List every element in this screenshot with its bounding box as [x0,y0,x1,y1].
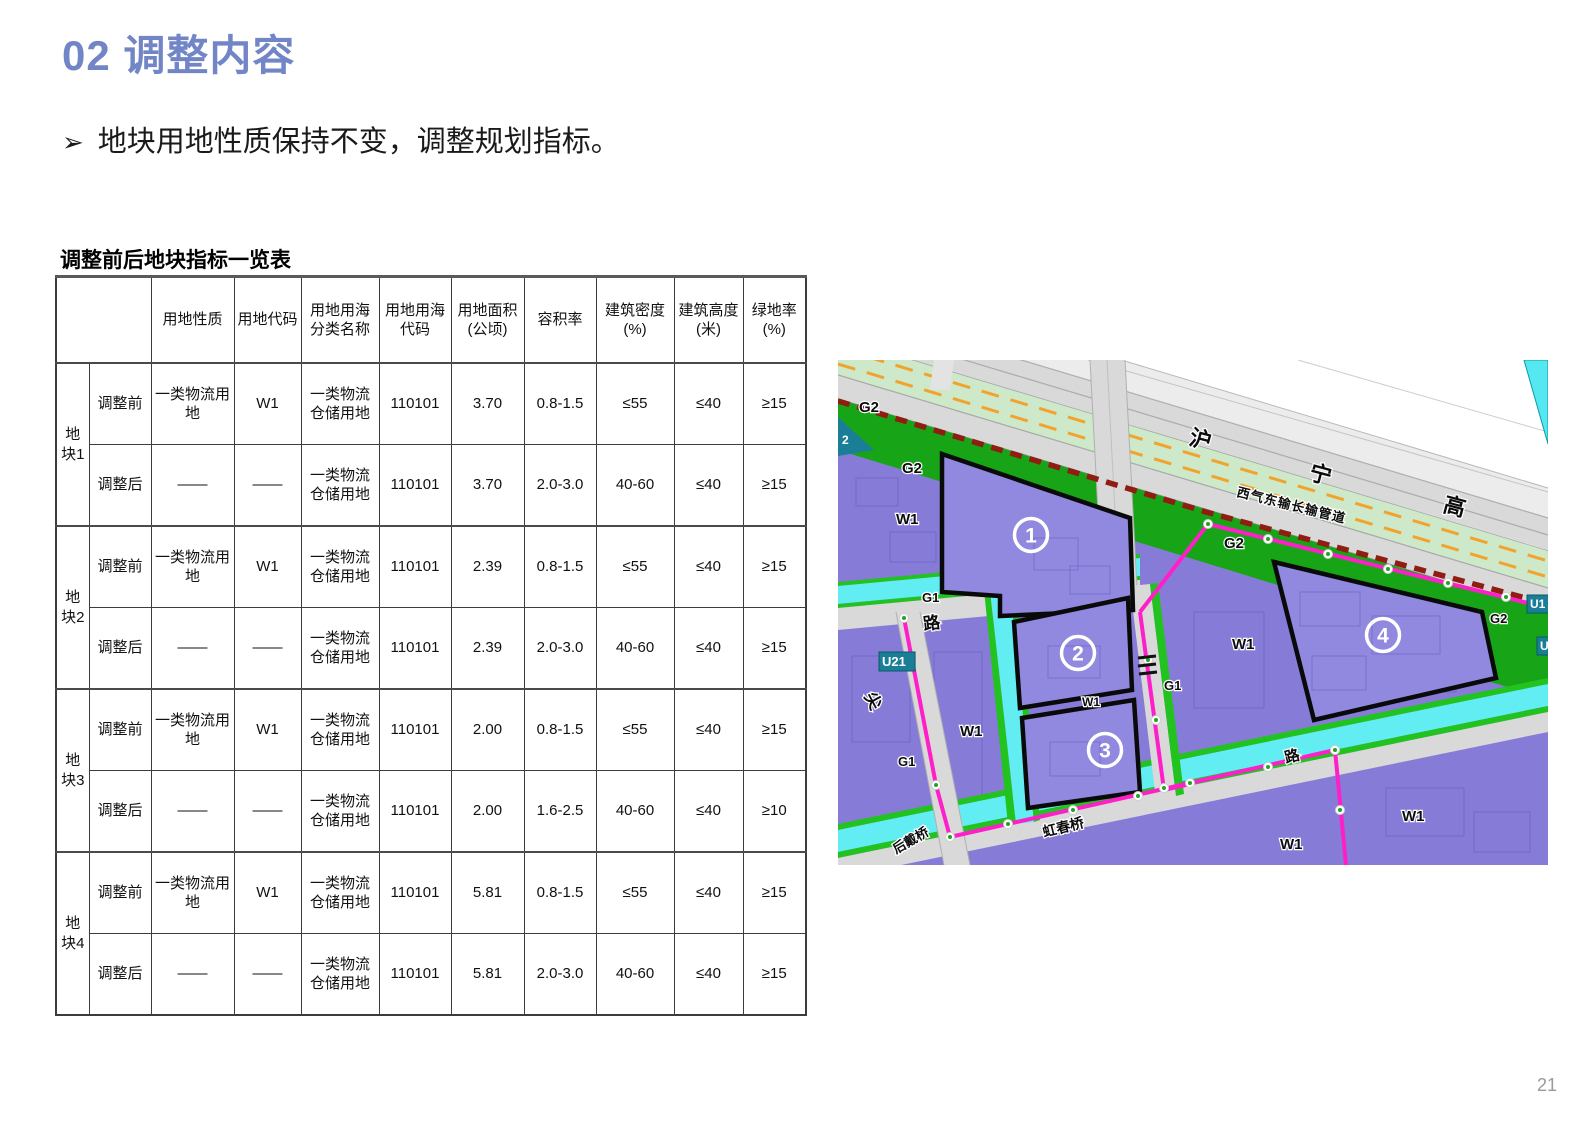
table-cell: 110101 [379,363,451,445]
bullet-item: ➢地块用地性质保持不变，调整规划指标。 [62,118,620,160]
table-cell: 0.8-1.5 [524,689,596,771]
table-cell: 一类物流仓储用地 [301,852,379,934]
table-cell: 一类物流用地 [151,689,234,771]
map-label: G2 [859,399,879,416]
map-label: W1 [896,511,919,528]
table-cell: ≤40 [674,526,743,608]
slide: { "page": { "number": "21" }, "header": … [0,0,1587,1123]
map-label: G2 [1224,535,1244,552]
map-label: G1 [922,590,939,605]
boundary-node-dot [1162,786,1166,790]
plot-group-label: 地块3 [56,689,89,852]
boundary-node-dot [1446,581,1450,585]
table-cell: ≥15 [743,689,806,771]
table-cell: ≥15 [743,852,806,934]
bullet-text: 地块用地性质保持不变，调整规划指标。 [98,126,620,158]
table-cell: 2.00 [451,689,524,771]
table-cell: ≤40 [674,363,743,445]
table-cell: 调整后 [89,934,151,1016]
table-cell: 一类物流仓储用地 [301,608,379,690]
table-cell: 0.8-1.5 [524,363,596,445]
table-cell: 110101 [379,934,451,1016]
boundary-node-dot [1266,537,1270,541]
col-header: 用地代码 [234,277,301,364]
table-cell: 3.70 [451,363,524,445]
boundary-node-dot [948,835,952,839]
table-cell: 110101 [379,689,451,771]
map-label: G2 [1490,611,1507,626]
table-cell: ≤40 [674,934,743,1016]
map-label: W1 [1082,695,1100,709]
boundary-node-dot [1333,748,1337,752]
table-cell: 一类物流仓储用地 [301,526,379,608]
boundary-node-dot [1386,567,1390,571]
table-cell: —— [151,445,234,527]
boundary-node-dot [1146,658,1150,662]
table-cell: ≥15 [743,934,806,1016]
table-cell: ≥15 [743,445,806,527]
table-cell: 0.8-1.5 [524,852,596,934]
boundary-node-dot [1504,595,1508,599]
header-empty [56,277,151,364]
map-label: G1 [1164,678,1181,693]
table-cell: W1 [234,363,301,445]
boundary-node-dot [1006,822,1010,826]
table-cell: —— [234,608,301,690]
table-cell: ≤55 [596,526,674,608]
boundary-node-dot [1071,808,1075,812]
table-cell: ≤40 [674,771,743,853]
col-header: 用地用海代码 [379,277,451,364]
table-cell: 110101 [379,445,451,527]
table-row: 地块1调整前一类物流用地W1一类物流仓储用地1101013.700.8-1.5≤… [56,363,806,445]
table-cell: 2.0-3.0 [524,445,596,527]
map-label: U1 [1530,597,1546,611]
table-cell: —— [151,934,234,1016]
table-cell: 0.8-1.5 [524,526,596,608]
table-cell: ≥10 [743,771,806,853]
table-cell: 一类物流仓储用地 [301,771,379,853]
map-label: W1 [1232,636,1255,653]
table-cell: 110101 [379,608,451,690]
table-cell: ≤40 [674,689,743,771]
table-row: 调整后————一类物流仓储用地1101012.392.0-3.040-60≤40… [56,608,806,690]
boundary-node-dot [1326,552,1330,556]
boundary-node-dot [1266,765,1270,769]
col-header: 绿地率 (%) [743,277,806,364]
plot-marker-number: 3 [1099,740,1111,763]
table-cell: 2.0-3.0 [524,608,596,690]
table-row: 地块2调整前一类物流用地W1一类物流仓储用地1101012.390.8-1.5≤… [56,526,806,608]
bullet-arrow-icon: ➢ [62,127,84,157]
table-header-row: 用地性质用地代码用地用海分类名称用地用海代码用地面积 (公顷)容积率建筑密度 (… [56,277,806,364]
col-header: 用地用海分类名称 [301,277,379,364]
col-header: 建筑密度 (%) [596,277,674,364]
plot-group-label: 地块2 [56,526,89,689]
planning-map: G22G2W1G1路U21尖G1W1后戴桥虹春桥W1G1W1G2G2U1U1W1… [838,360,1548,865]
table-cell: 2.39 [451,526,524,608]
table-cell: 5.81 [451,852,524,934]
table-cell: 2.00 [451,771,524,853]
plot-marker-number: 1 [1025,525,1037,548]
map-label: U1 [1540,639,1548,653]
table-cell: 1.6-2.5 [524,771,596,853]
table-cell: ≤40 [674,852,743,934]
table-cell: —— [234,771,301,853]
table-cell: —— [234,445,301,527]
map-label: W1 [1402,808,1425,825]
table-cell: ≥15 [743,363,806,445]
plot-marker-number: 4 [1377,625,1389,648]
table-cell: 调整后 [89,771,151,853]
table-cell: 一类物流用地 [151,526,234,608]
table-cell: ≥15 [743,526,806,608]
table-cell: 一类物流仓储用地 [301,445,379,527]
table-title: 调整前后地块指标一览表 [60,244,291,274]
table-cell: 40-60 [596,608,674,690]
planning-map-svg: G22G2W1G1路U21尖G1W1后戴桥虹春桥W1G1W1G2G2U1U1W1… [838,360,1548,865]
table-cell: 5.81 [451,934,524,1016]
plot-group-label: 地块1 [56,363,89,526]
boundary-node-dot [1154,718,1158,722]
map-label: G1 [898,754,915,769]
map-label: G2 [902,460,922,477]
boundary-node-dot [902,616,906,620]
table-cell: 110101 [379,526,451,608]
table-cell: ≤55 [596,363,674,445]
table-row: 调整后————一类物流仓储用地1101013.702.0-3.040-60≤40… [56,445,806,527]
col-header: 用地性质 [151,277,234,364]
table-cell: 调整前 [89,689,151,771]
plot-marker-number: 2 [1072,643,1084,666]
table-cell: 40-60 [596,934,674,1016]
table-row: 调整后————一类物流仓储用地1101015.812.0-3.040-60≤40… [56,934,806,1016]
map-label: W1 [1280,836,1303,853]
table-cell: ≥15 [743,608,806,690]
map-label: 2 [842,433,849,447]
boundary-node-dot [1338,808,1342,812]
map-label: W1 [960,723,983,740]
plot-group-label: 地块4 [56,852,89,1015]
table-cell: ≤40 [674,608,743,690]
page-title: 02 调整内容 [62,22,295,83]
table-cell: W1 [234,526,301,608]
boundary-node-dot [1206,522,1210,526]
table-cell: 一类物流仓储用地 [301,689,379,771]
table-cell: —— [151,608,234,690]
table-cell: ≤40 [674,445,743,527]
table-cell: 一类物流用地 [151,852,234,934]
table-cell: 2.39 [451,608,524,690]
table-cell: 调整前 [89,363,151,445]
table-cell: W1 [234,852,301,934]
table-cell: ≤55 [596,689,674,771]
table-cell: 一类物流仓储用地 [301,934,379,1016]
table-row: 地块3调整前一类物流用地W1一类物流仓储用地1101012.000.8-1.5≤… [56,689,806,771]
table-cell: 一类物流仓储用地 [301,363,379,445]
table-cell: 调整前 [89,526,151,608]
page-number: 21 [1537,1075,1557,1096]
table-cell: 2.0-3.0 [524,934,596,1016]
boundary-node-dot [1136,794,1140,798]
boundary-node-dot [934,783,938,787]
boundary-node-dot [1188,781,1192,785]
table-row: 调整后————一类物流仓储用地1101012.001.6-2.540-60≤40… [56,771,806,853]
table-row: 地块4调整前一类物流用地W1一类物流仓储用地1101015.810.8-1.5≤… [56,852,806,934]
table-cell: 3.70 [451,445,524,527]
table-cell: W1 [234,689,301,771]
plot-indicator-table: 用地性质用地代码用地用海分类名称用地用海代码用地面积 (公顷)容积率建筑密度 (… [55,275,807,1016]
col-header: 容积率 [524,277,596,364]
table-cell: 调整前 [89,852,151,934]
col-header: 用地面积 (公顷) [451,277,524,364]
table-cell: —— [151,771,234,853]
table-cell: 40-60 [596,445,674,527]
table-cell: ≤55 [596,852,674,934]
col-header: 建筑高度 (米) [674,277,743,364]
table-cell: 一类物流用地 [151,363,234,445]
table-cell: —— [234,934,301,1016]
table-cell: 110101 [379,852,451,934]
map-label: U21 [882,654,906,669]
table-cell: 40-60 [596,771,674,853]
table-cell: 110101 [379,771,451,853]
road-minor-north [930,360,954,390]
table-cell: 调整后 [89,445,151,527]
table-cell: 调整后 [89,608,151,690]
